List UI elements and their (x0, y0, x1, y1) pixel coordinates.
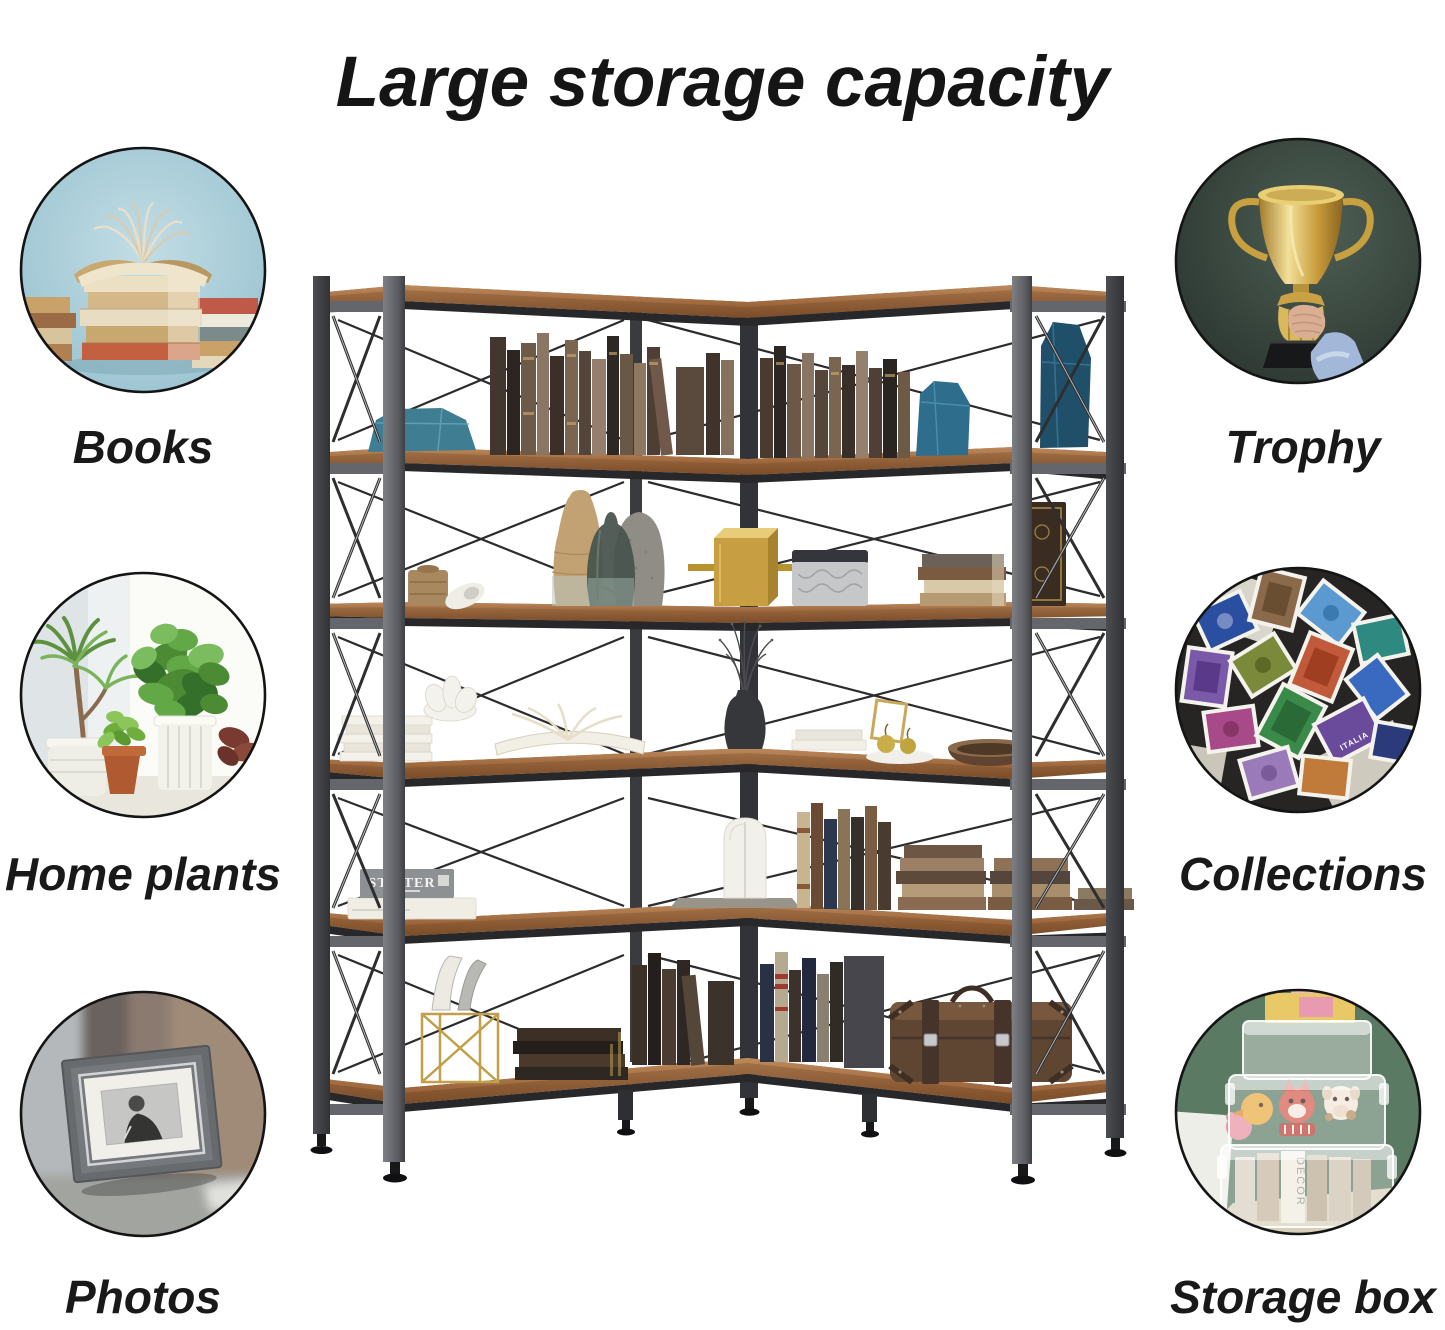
open-fan-book (495, 704, 645, 755)
category-label-trophy: Trophy (1103, 422, 1445, 473)
category-collections: ITALIA (1173, 565, 1423, 815)
category-trophy (1173, 136, 1423, 386)
center-book-stack (80, 276, 202, 360)
pears (877, 724, 916, 754)
right-back-post (1106, 276, 1124, 1138)
trophy-photo (1173, 136, 1423, 386)
corner-bookshelf-photo: STIFTER (300, 262, 1148, 1192)
category-label-books: Books (0, 422, 343, 473)
vintage-suitcase (890, 988, 1072, 1084)
product-infographic: Large storage capacity (0, 0, 1445, 1330)
category-home-plants (18, 570, 268, 820)
left-back-post (313, 276, 330, 1134)
category-storage-box: DECOR (1173, 987, 1423, 1237)
category-photos (18, 989, 268, 1239)
standing-books (797, 803, 891, 910)
gold-cube (688, 528, 792, 606)
collections-photo: ITALIA (1173, 565, 1423, 815)
product-image: STIFTER (300, 262, 1148, 1192)
antique-books-row (490, 333, 910, 458)
books-photo (18, 145, 268, 395)
left-front-post (383, 276, 405, 1162)
stone-slab (670, 898, 800, 908)
silver-box (792, 550, 868, 606)
arch-sculpture (724, 818, 766, 898)
home-plants-photo (18, 570, 268, 820)
category-label-home-plants: Home plants (0, 849, 343, 900)
picture-frame (62, 1046, 224, 1202)
x-braces-left-end (333, 316, 380, 1074)
right-front-post (1012, 276, 1032, 1164)
standing-books-right (760, 952, 884, 1068)
standing-dark-books (632, 953, 734, 1066)
photos-photo (18, 989, 268, 1239)
flat-book-stack (918, 554, 1006, 606)
blue-vase (916, 381, 970, 456)
category-label-collections: Collections (1103, 849, 1445, 900)
plate (866, 750, 934, 764)
tier2-decor (408, 490, 1066, 615)
storage-box-photo: DECOR (1173, 987, 1423, 1237)
category-label-storage-box: Storage box (1103, 1272, 1445, 1323)
dark-flat-stack (513, 1028, 628, 1080)
category-books (18, 145, 268, 395)
category-label-photos: Photos (0, 1272, 343, 1323)
page-title: Large storage capacity (0, 42, 1445, 123)
magazine-rack (422, 956, 498, 1082)
